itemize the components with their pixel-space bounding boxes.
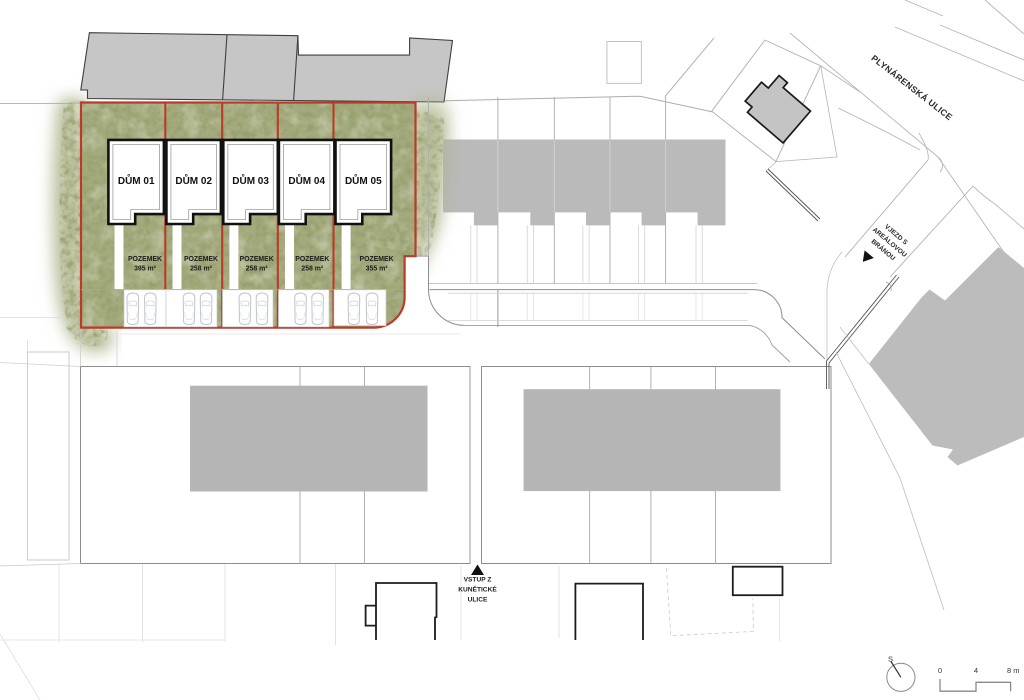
svg-text:355 m²: 355 m² <box>366 266 389 273</box>
svg-text:258 m²: 258 m² <box>301 266 324 273</box>
svg-text:4: 4 <box>974 666 978 675</box>
svg-text:258 m²: 258 m² <box>190 266 213 273</box>
svg-text:POZEMEK: POZEMEK <box>240 256 274 263</box>
svg-text:DŮM 04: DŮM 04 <box>288 173 325 187</box>
svg-text:DŮM 03: DŮM 03 <box>232 173 269 187</box>
svg-text:POZEMEK: POZEMEK <box>360 256 394 263</box>
svg-text:ULICE: ULICE <box>468 597 488 604</box>
svg-text:POZEMEK: POZEMEK <box>184 256 218 263</box>
svg-text:DŮM 02: DŮM 02 <box>175 173 212 187</box>
svg-text:DŮM 05: DŮM 05 <box>345 173 382 187</box>
svg-text:DŮM 01: DŮM 01 <box>118 173 155 187</box>
svg-text:KUNĚTICKÉ: KUNĚTICKÉ <box>458 585 497 594</box>
svg-text:395 m²: 395 m² <box>134 266 157 273</box>
svg-text:POZEMEK: POZEMEK <box>295 256 329 263</box>
svg-text:0: 0 <box>938 666 942 675</box>
svg-text:8 m: 8 m <box>1007 666 1020 675</box>
svg-text:258 m²: 258 m² <box>246 266 269 273</box>
svg-text:POZEMEK: POZEMEK <box>128 256 162 263</box>
svg-text:S: S <box>888 655 893 664</box>
svg-text:VSTUP Z: VSTUP Z <box>464 577 492 584</box>
